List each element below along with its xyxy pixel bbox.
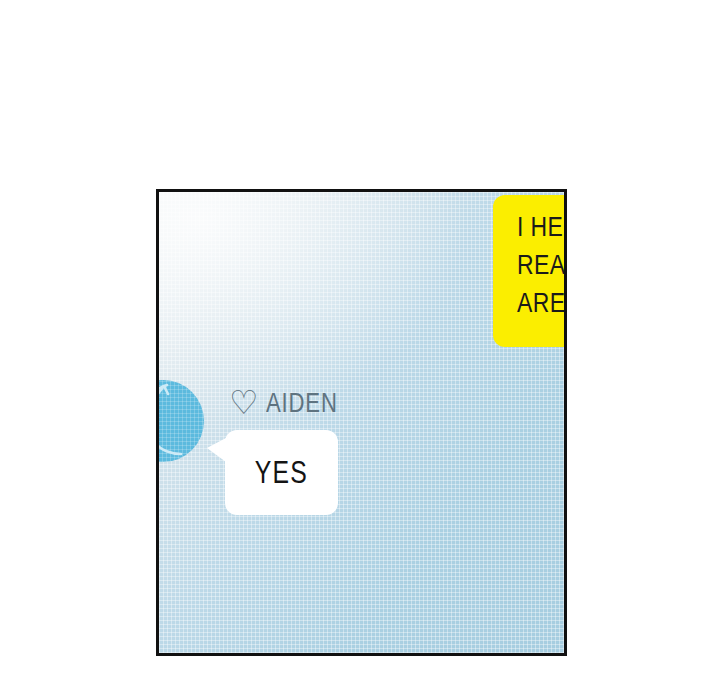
- character-name: AIDEN: [266, 388, 338, 418]
- clipped-speech-bubble: I HE REA ARE: [493, 195, 567, 347]
- heart-icon: ♡: [229, 388, 259, 418]
- speech-line: REA: [517, 246, 567, 284]
- speech-line: ARE: [517, 284, 567, 322]
- speech-bubble-yes: YES: [225, 430, 338, 515]
- speech-line: I HE: [517, 208, 567, 246]
- profile-sketch-icon: [156, 380, 204, 462]
- speech-bubble-tail: [207, 438, 226, 463]
- speech-text: YES: [255, 455, 308, 491]
- comic-panel: I HE REA ARE ♡ AIDEN YES: [156, 189, 567, 656]
- avatar: [156, 380, 204, 462]
- page-background: I HE REA ARE ♡ AIDEN YES: [0, 0, 720, 700]
- character-name-row: ♡ AIDEN: [229, 388, 353, 418]
